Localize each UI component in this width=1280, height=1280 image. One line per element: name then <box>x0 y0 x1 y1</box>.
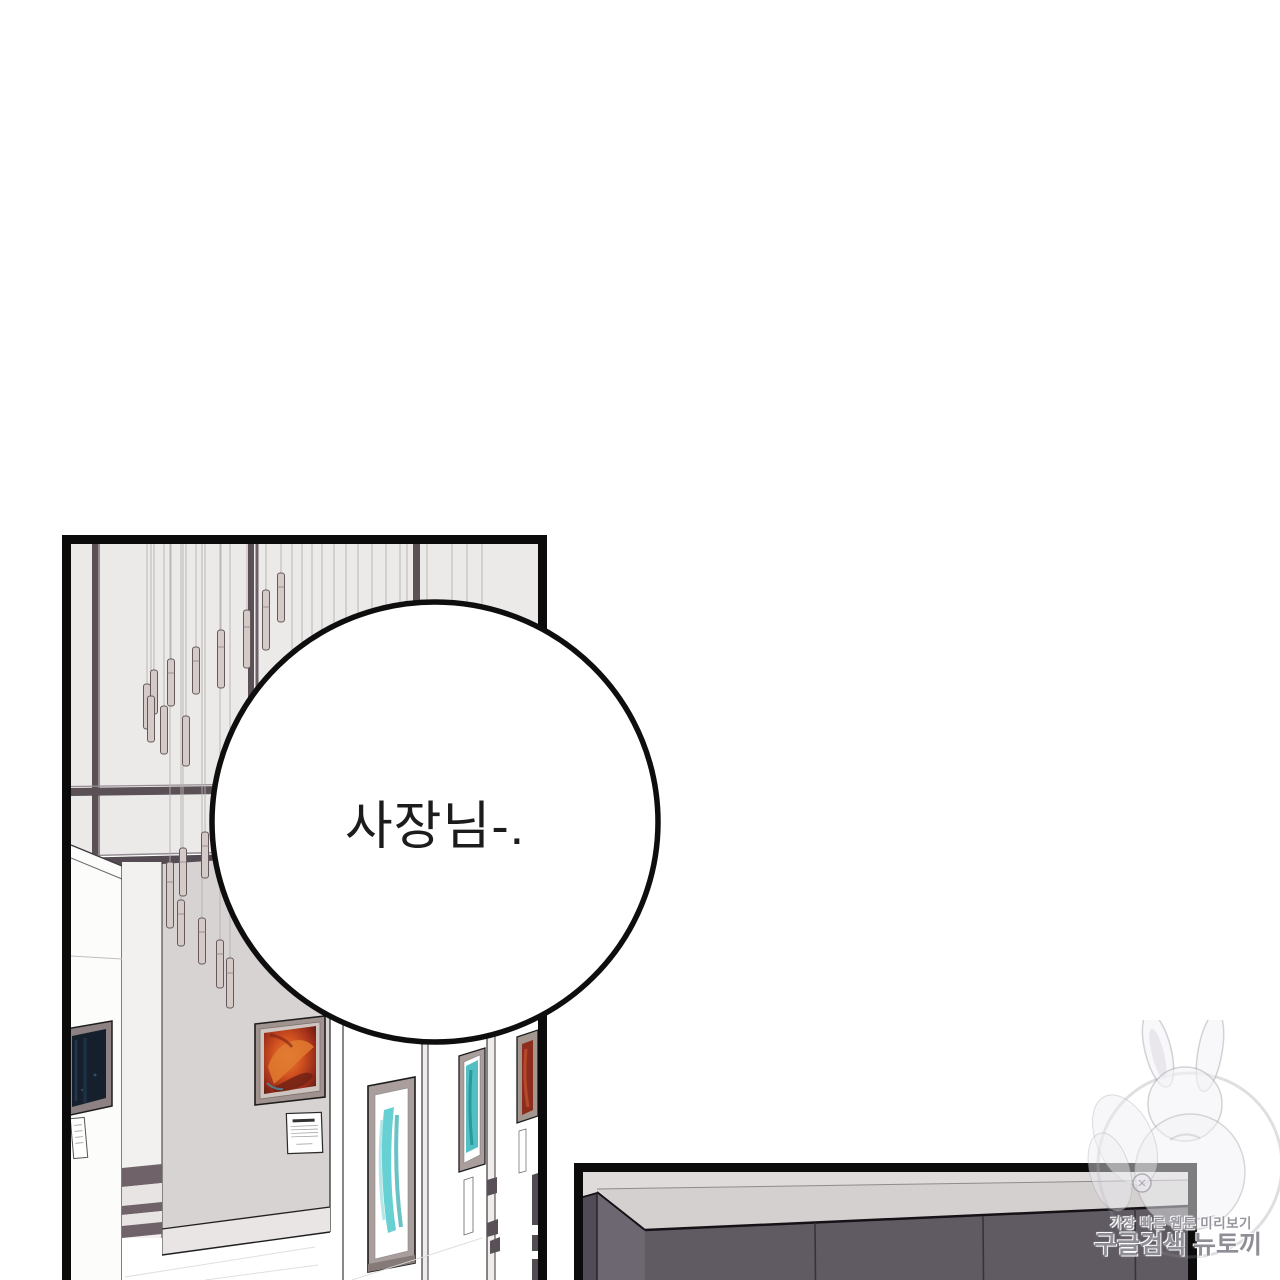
page-background: 사장님-. 가장 빠른 웹툰 미리보기 구글검색 뉴토끼 <box>0 0 1280 1280</box>
cabinet-seam <box>815 1223 816 1280</box>
corridor-label <box>519 1129 526 1173</box>
cabinet-side-dark <box>583 1193 597 1280</box>
gallery-gap-wall <box>122 862 162 1280</box>
dark-painting <box>66 1021 112 1116</box>
cabinet-seam <box>983 1216 984 1280</box>
teal-painting-large <box>368 1077 415 1272</box>
watermark: 가장 빠른 웹툰 미리보기 구글검색 뉴토끼 <box>1040 1020 1280 1280</box>
wall-label <box>70 1117 87 1158</box>
watermark-line2: 구글검색 뉴토끼 <box>1094 1225 1262 1261</box>
teal-painting-small <box>459 1048 485 1172</box>
exhibit-placard <box>286 1112 322 1153</box>
speech-bubble-text: 사장님-. <box>285 788 585 854</box>
corridor-label <box>464 1177 473 1235</box>
